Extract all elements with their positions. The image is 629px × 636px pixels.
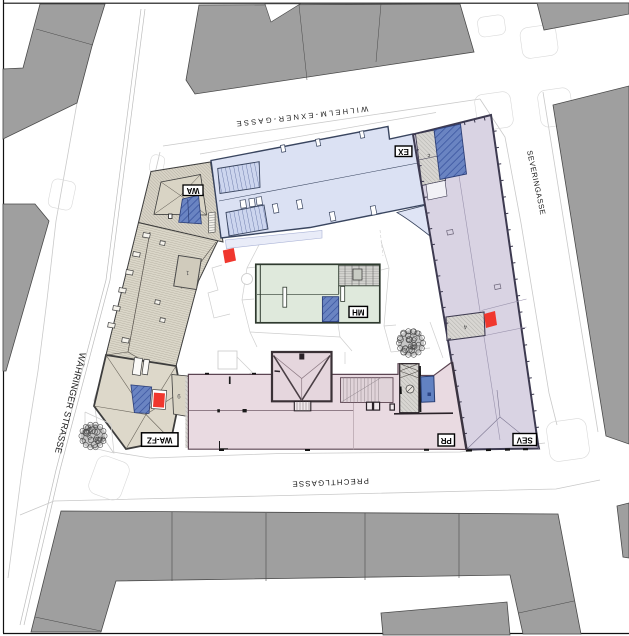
svg-text:PR: PR: [440, 436, 451, 445]
svg-text:WA: WA: [186, 186, 199, 195]
svg-text:WA-FZ: WA-FZ: [147, 435, 172, 444]
svg-text:EX: EX: [398, 147, 409, 156]
svg-text:MH: MH: [352, 307, 365, 316]
svg-text:SEV: SEV: [516, 436, 533, 445]
